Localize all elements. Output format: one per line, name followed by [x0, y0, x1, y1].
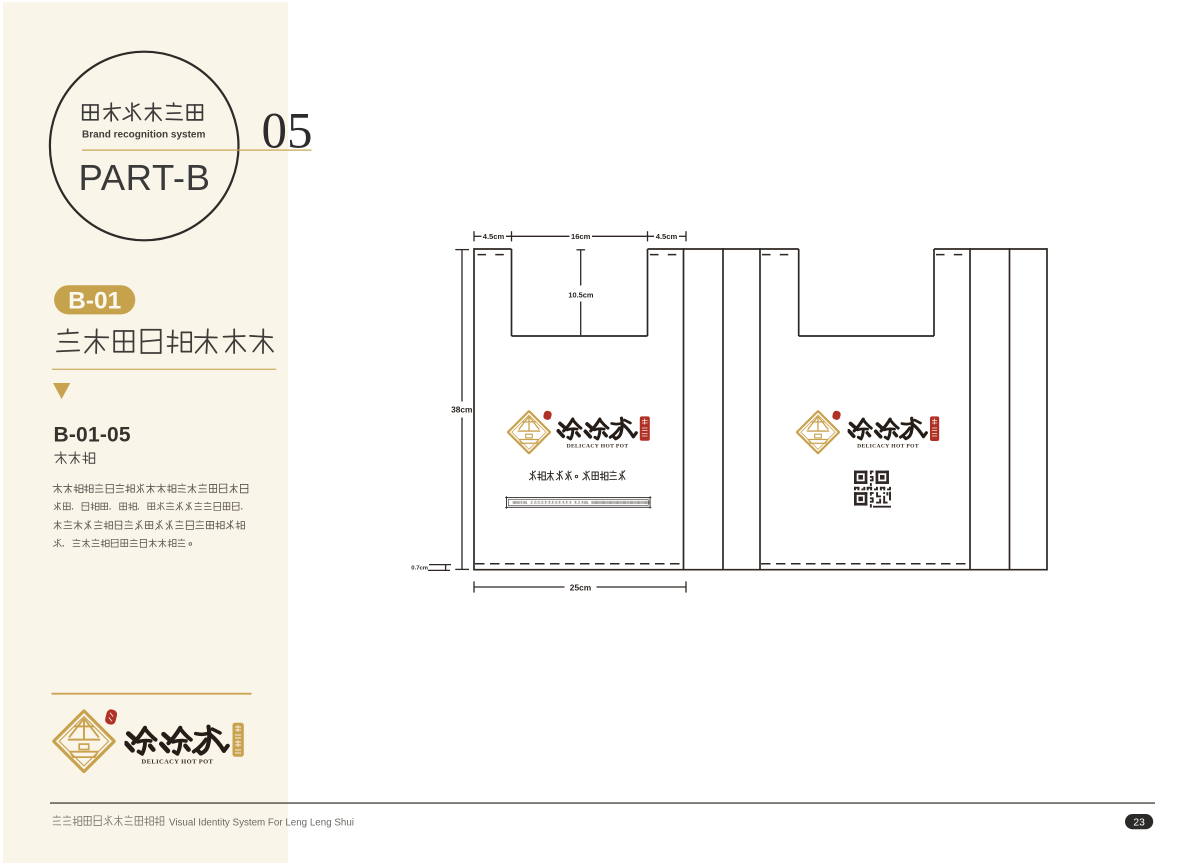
- svg-text:B-01-05: B-01-05: [54, 423, 131, 446]
- svg-text:DELICACY HOT POT: DELICACY HOT POT: [857, 444, 919, 450]
- svg-text:PART-B: PART-B: [79, 157, 211, 198]
- svg-text:DELICACY HOT POT: DELICACY HOT POT: [142, 758, 214, 765]
- svg-text:DELICACY HOT POT: DELICACY HOT POT: [567, 444, 629, 450]
- svg-text:05: 05: [262, 103, 313, 159]
- svg-text:4.5cm: 4.5cm: [656, 232, 678, 241]
- svg-text:Visual Identity System For Len: Visual Identity System For Leng Leng Shu…: [169, 818, 354, 829]
- svg-text:0.7cm: 0.7cm: [411, 566, 428, 572]
- svg-text:4.5cm: 4.5cm: [483, 232, 505, 241]
- svg-text:Brand recognition system: Brand recognition system: [82, 130, 205, 141]
- svg-text:38cm: 38cm: [451, 404, 472, 414]
- svg-text:25cm: 25cm: [570, 582, 591, 592]
- svg-text:10.5cm: 10.5cm: [568, 290, 593, 299]
- svg-text:23: 23: [1133, 817, 1145, 828]
- svg-text:16cm: 16cm: [571, 232, 591, 241]
- svg-text:B-01: B-01: [68, 288, 121, 315]
